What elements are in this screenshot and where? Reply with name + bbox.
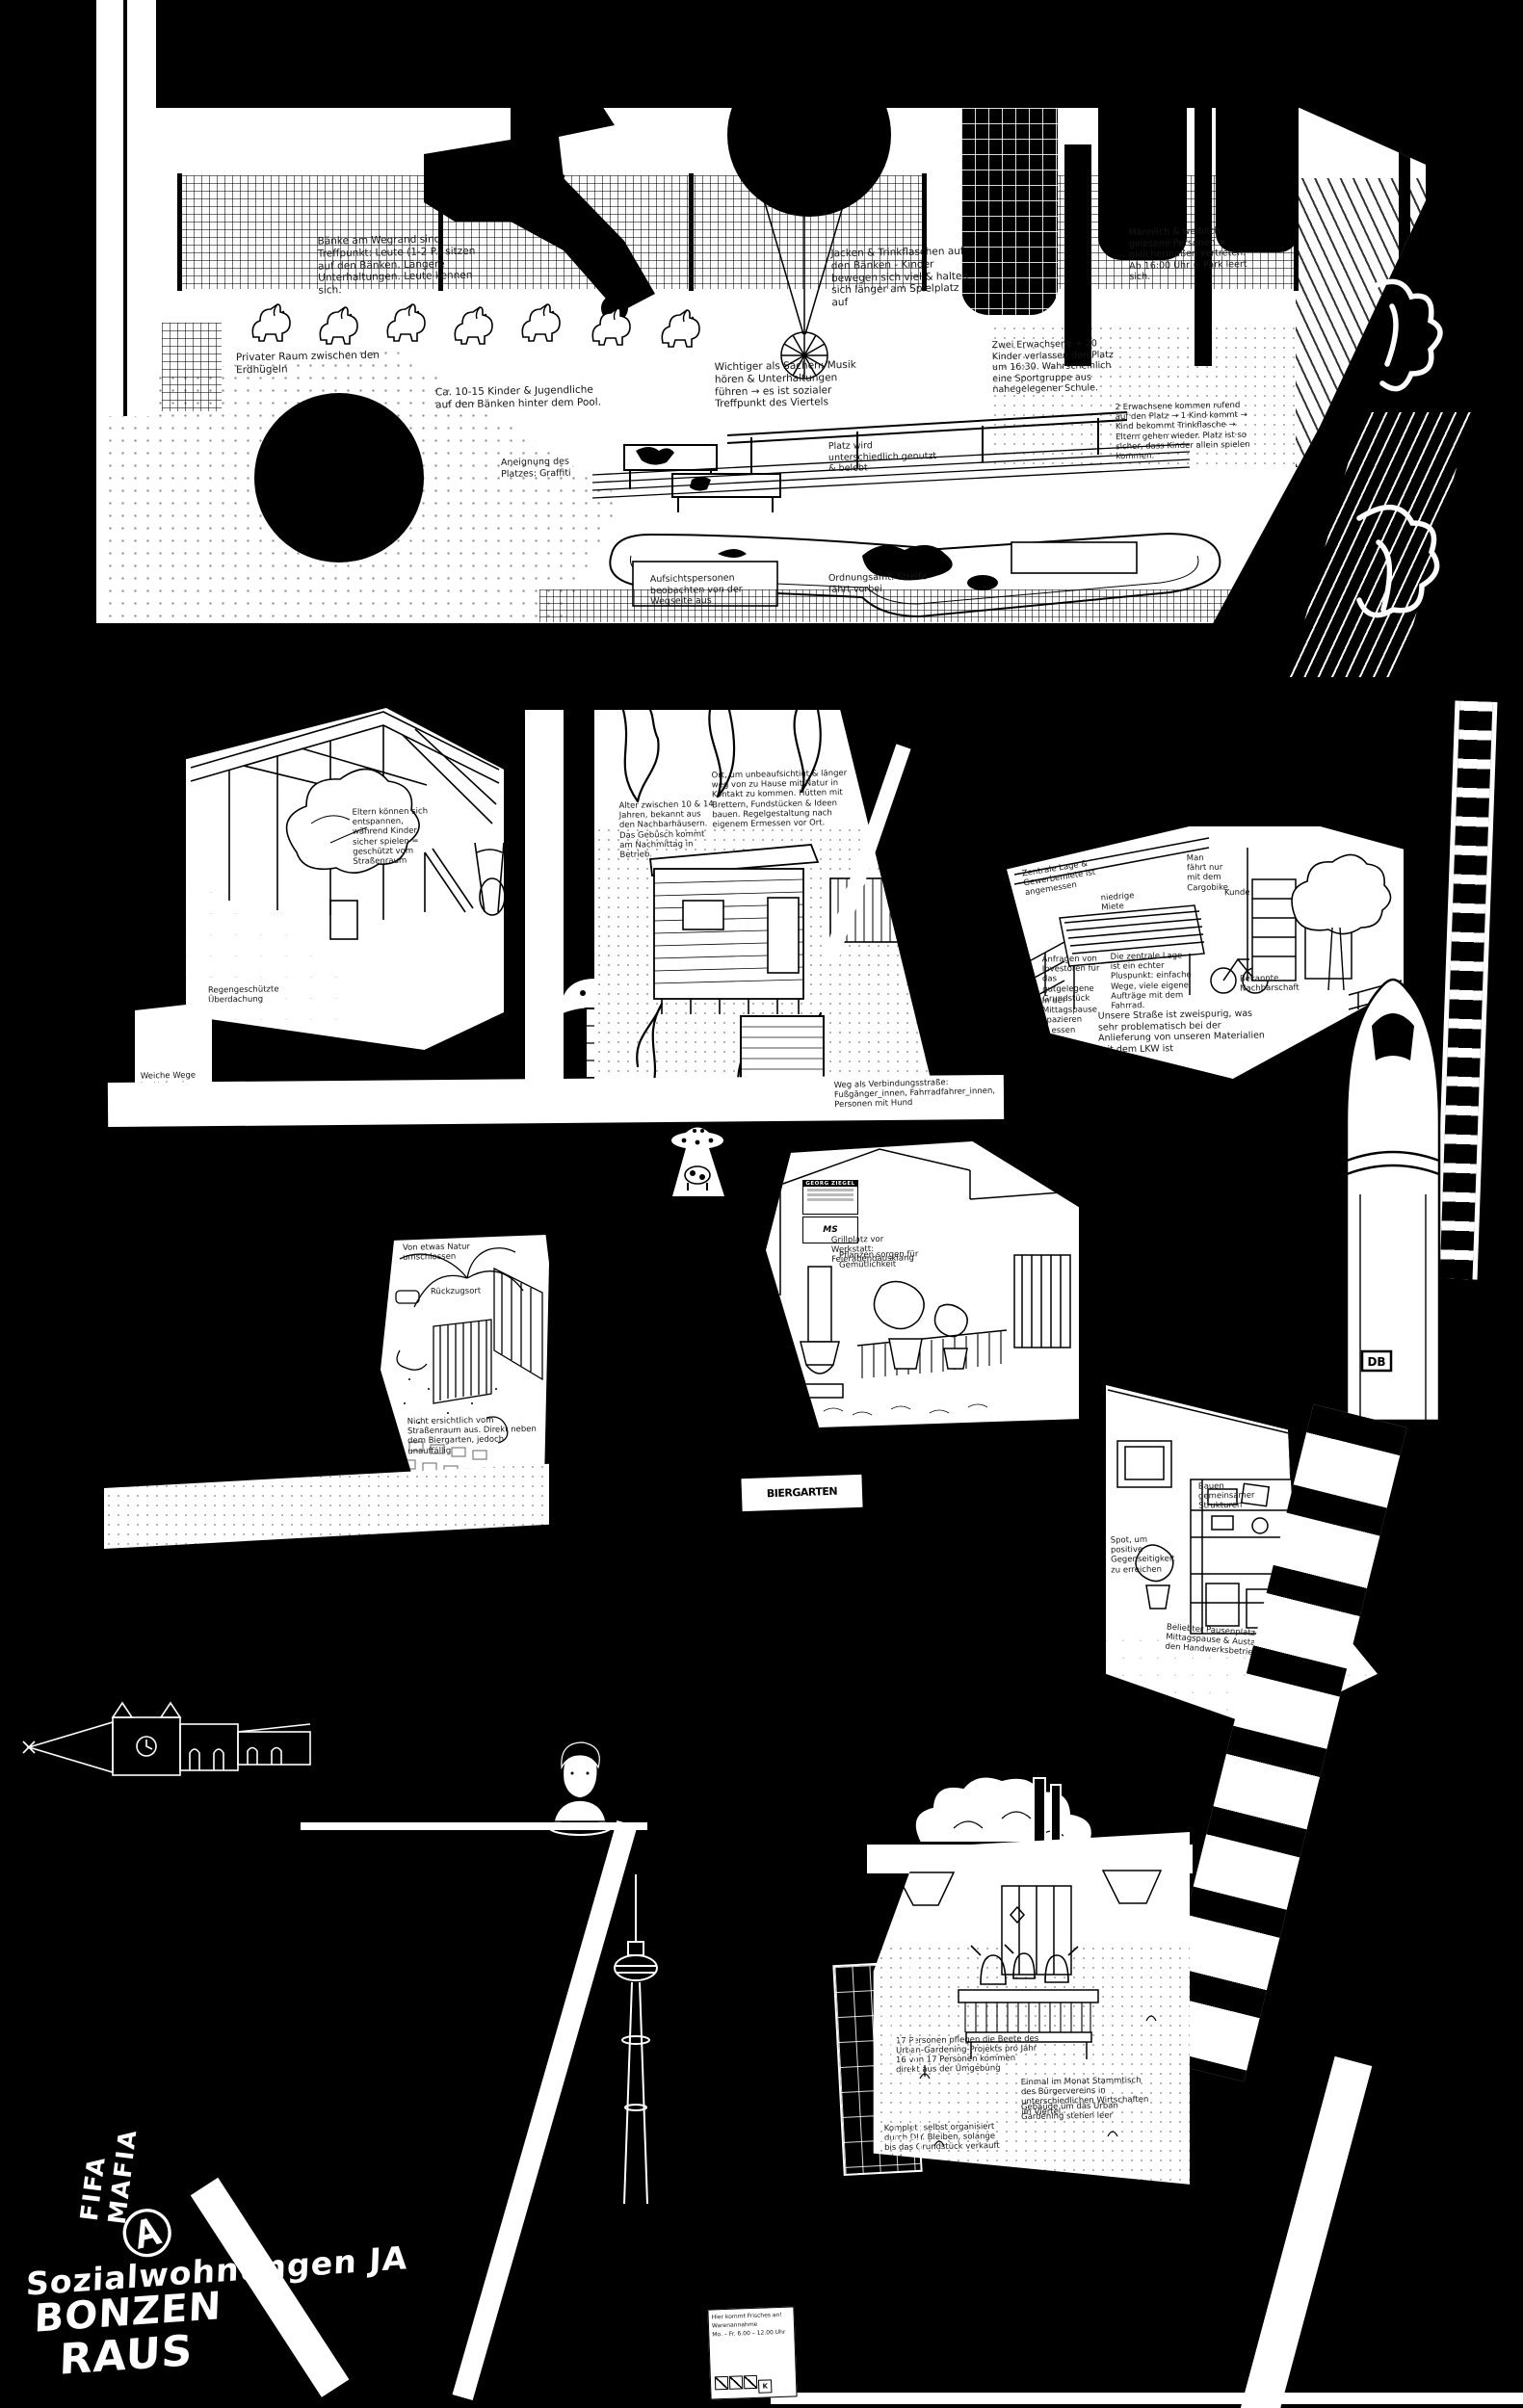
werkstatt-sign: GEORG ZIEGEL (802, 1180, 858, 1215)
ufo-cow-graffiti-icon (663, 1115, 732, 1200)
fence-post (689, 173, 694, 291)
note-ug-leerstand: Gebäude um das Urban Gardening stehen le… (1021, 2101, 1146, 2123)
db-logo: DB (1367, 1355, 1385, 1369)
street-band: Weg als Verbindungsstraße: Fußgänger_inn… (108, 1075, 1004, 1127)
slogan-line3: RAUS (59, 2326, 194, 2385)
sign-logo: MS (823, 1225, 837, 1235)
note-treffpunkt: Wichtiger als Sachen: Musik hören & Unte… (715, 359, 860, 411)
train-icon: DB (1318, 968, 1467, 1421)
garage-door (740, 1015, 825, 1085)
sign-line3: Mo. – Fr. 6.00 – 12.00 Uhr (712, 2328, 791, 2340)
church-icon (21, 1664, 320, 1828)
brand-icon: K (758, 2379, 772, 2393)
note-werkstatt-plus: Die zentrale Lage ist ein echter Pluspun… (1110, 951, 1192, 1011)
tree-silhouette (1064, 144, 1091, 366)
note-weg-verbindung: Weg als Verbindungsstraße: Fußgänger_inn… (834, 1076, 1013, 1110)
road-horizontal (301, 1822, 647, 1830)
note-raum-spot: Spot, um positive Gegenseitigkeit zu err… (1111, 1534, 1173, 1575)
pond-circle (254, 393, 424, 563)
note-nutzung: Platz wird unterschiedlich genutzt & bel… (828, 439, 945, 475)
note-gender: Männlich & weiblich gelesene Personen = … (1129, 225, 1250, 283)
road-diagonal (1240, 2056, 1372, 2408)
note-garten-rueckzug: Rückzugsort (431, 1287, 475, 1297)
chimney-pipe (1033, 1777, 1046, 1850)
rocking-horse-icon (313, 303, 363, 348)
note-benches: Bänke am Wegrand sind Treffpunkt: Leute … (317, 232, 491, 297)
excavator-icon (366, 87, 684, 337)
graffiti-tag-icon (156, 624, 301, 745)
note-sportgruppe: Zwei Erwachsene + 20 Kinder verlassen de… (992, 338, 1123, 396)
rocking-horse-icon (448, 303, 498, 348)
note-jackets: Jacken & Trinkflaschen auf den Bänken - … (830, 246, 971, 310)
no-dogs-icon (729, 2375, 743, 2389)
note-graffiti: Aneignung des Platzes: Graffiti (501, 456, 607, 480)
note-pflanzen: Pflanzen sorgen für Gemütlichkeit (839, 1249, 920, 1270)
rocking-horse-icon (381, 301, 431, 345)
tree-silhouette (961, 108, 1058, 315)
road-horizontal (771, 2393, 1523, 2404)
biergarten-sign: BIERGARTEN (767, 1485, 838, 1501)
note-garten-versteckt: Nicht ersichtlich vom Straßenraum aus. D… (407, 1415, 545, 1456)
street-curb-line (123, 0, 127, 416)
rocking-horse-icon (655, 306, 705, 351)
note-aufsicht: Aufsichtspersonen beobachten von der Weg… (650, 572, 776, 608)
graffiti-tag-icon (1353, 268, 1469, 412)
sign-title: GEORG ZIEGEL (803, 1181, 857, 1187)
pavement-wedge (104, 1462, 549, 1549)
note-garten-natur: Von etwas Natur umschlossen (403, 1242, 484, 1263)
fence-post (177, 173, 182, 291)
note-raum-bauen: Bauen gemeinsamer Strukturen (1198, 1480, 1269, 1511)
note-hof-dach: Regengeschützte Überdachung (208, 984, 268, 1005)
rocking-horse-icon (515, 301, 565, 345)
note-hof-eltern: Eltern können sich entspannen, während K… (352, 806, 435, 867)
rocking-horse-icon (246, 301, 296, 345)
biergarten-patch: BIERGARTEN (741, 1475, 862, 1511)
left-street-strip (96, 0, 156, 416)
note-kids: Ca. 10-15 Kinder & Jugendliche auf den B… (435, 383, 604, 411)
note-werkstatt-cargo: Man fährt nur mit dem Cargobike (1187, 853, 1226, 893)
note-versteck-alter: Alter zwischen 10 & 14 Jahren, bekannt a… (618, 799, 716, 860)
no-parking-icon (744, 2375, 757, 2389)
greenhouse-icon (832, 1961, 922, 2176)
hof-panel: Eltern können sich entspannen, während K… (186, 708, 504, 1050)
street-vertical (525, 710, 564, 1086)
rocking-horse-icon (586, 304, 636, 349)
note-werkstatt-mittag: In der Mittagspause spazieren & essen (1042, 996, 1090, 1036)
note-werkstatt-kunde: Kunde (1224, 888, 1249, 899)
note-werkstatt-miete: niedrige Miete (1100, 890, 1145, 913)
no-smoking-icon (715, 2376, 728, 2390)
note-eltern: 2 Erwachsene kommen rufend auf den Platz… (1115, 401, 1250, 462)
note-versteck-ort: Ort, um unbeaufsichtigt & länger weg von… (711, 769, 866, 830)
poster-canvas: Bänke am Wegrand sind Treffpunkt: Leute … (0, 0, 1523, 2408)
note-werkstatt-lkw: Unsere Straße ist zweispurig, was sehr p… (1098, 1008, 1273, 1055)
note-private: Privater Raum zwischen den Erdhügeln (236, 350, 381, 377)
grill-panel: GEORG ZIEGEL MS Grillplatz vor Werkstatt… (766, 1141, 1079, 1427)
note-ordnungsamt: Ordnungsamt: Streife fährt vorbei (828, 571, 934, 595)
warenannahme-sign: Hier kommt Frisches an! Warenannahme Mo.… (707, 2306, 797, 2399)
park-panel: Bänke am Wegrand sind Treffpunkt: Leute … (96, 108, 1426, 623)
note-werkstatt-nachbarschaft: Bekannte Nachbarschaft (1240, 973, 1309, 994)
